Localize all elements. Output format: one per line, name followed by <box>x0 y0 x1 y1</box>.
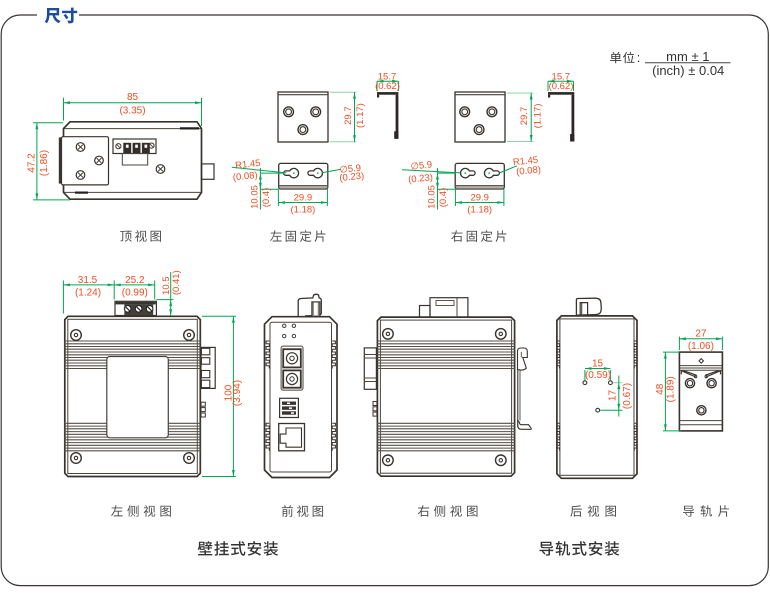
svg-text::: : <box>637 51 640 65</box>
svg-text:(0.41): (0.41) <box>171 270 182 295</box>
svg-text:(1.24): (1.24) <box>75 287 101 298</box>
svg-text:(0.4): (0.4) <box>438 188 449 208</box>
svg-text:∅5.9: ∅5.9 <box>410 159 433 172</box>
svg-text:15: 15 <box>592 358 604 369</box>
svg-text:(inch) ± 0.04: (inch) ± 0.04 <box>652 63 724 78</box>
svg-text:25.2: 25.2 <box>125 275 145 286</box>
svg-text:(0.4): (0.4) <box>261 188 272 208</box>
svg-text:29.7: 29.7 <box>519 107 530 126</box>
svg-text:(1.18): (1.18) <box>290 205 315 216</box>
svg-text:(1.89): (1.89) <box>666 376 677 402</box>
svg-text:85: 85 <box>127 92 139 103</box>
svg-text:(0.62): (0.62) <box>549 81 574 92</box>
svg-text:(1.06): (1.06) <box>688 341 714 352</box>
svg-text:29.9: 29.9 <box>470 193 489 204</box>
svg-text:31.5: 31.5 <box>78 275 98 286</box>
svg-text:(1.17): (1.17) <box>532 104 543 129</box>
svg-text:(1.18): (1.18) <box>467 205 492 216</box>
svg-text:10.05: 10.05 <box>250 185 261 209</box>
svg-text:47.2: 47.2 <box>26 153 37 173</box>
svg-text:(0.67): (0.67) <box>622 383 633 409</box>
svg-text:(0.59): (0.59) <box>585 370 611 381</box>
svg-text:(1.86): (1.86) <box>39 150 50 176</box>
svg-text:29.7: 29.7 <box>343 106 354 125</box>
svg-text:(0.99): (0.99) <box>122 287 148 298</box>
svg-text:(1.17): (1.17) <box>355 103 366 128</box>
svg-text:10.05: 10.05 <box>427 185 438 209</box>
svg-text:mm ± 1: mm ± 1 <box>666 49 709 64</box>
svg-text:48: 48 <box>655 383 666 395</box>
svg-text:17: 17 <box>608 390 619 402</box>
svg-text:(0.62): (0.62) <box>375 81 400 92</box>
svg-text:(3.94): (3.94) <box>232 380 243 406</box>
svg-text:29.9: 29.9 <box>294 193 313 204</box>
svg-text:27: 27 <box>695 328 707 339</box>
svg-text:(3.35): (3.35) <box>119 106 145 117</box>
